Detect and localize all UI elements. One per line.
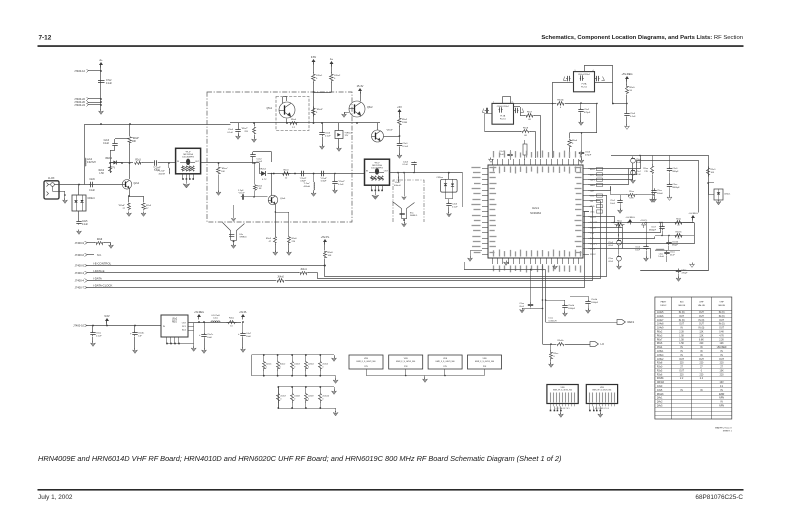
svg-text:VR2x4: VR2x4 xyxy=(259,169,266,171)
svg-text:R2x3: R2x3 xyxy=(135,160,141,162)
svg-text:SHIELD: SHIELD xyxy=(410,215,418,217)
svg-text:IN (0): IN (0) xyxy=(719,316,725,318)
svg-text:6.8K: 6.8K xyxy=(629,198,634,200)
svg-text:2.2pF: 2.2pF xyxy=(238,190,244,192)
svg-text:J7400-4: J7400-4 xyxy=(75,279,85,283)
svg-text:OUT: OUT xyxy=(679,370,684,372)
svg-text:R5x8: R5x8 xyxy=(523,127,529,129)
svg-text:R5x6: R5x6 xyxy=(292,238,298,240)
svg-text:C3x0: C3x0 xyxy=(657,386,663,388)
svg-text:470pF: 470pF xyxy=(682,273,689,275)
svg-text:+5V-REG: +5V-REG xyxy=(194,312,204,314)
svg-text:UNUSED: UNUSED xyxy=(717,347,727,349)
svg-text:R2x5: R2x5 xyxy=(146,205,152,207)
svg-text:I-DATA: I-DATA xyxy=(93,277,102,281)
svg-text:*VR5x3*: *VR5x3* xyxy=(345,133,353,135)
svg-text:*R5xx*: *R5xx* xyxy=(221,168,228,170)
svg-text:200uF: 200uF xyxy=(657,193,664,195)
svg-text:10uF: 10uF xyxy=(246,336,252,338)
svg-text:1.5K: 1.5K xyxy=(257,188,262,190)
svg-text:OUT: OUT xyxy=(719,359,724,361)
svg-text:*R5x7*: *R5x7* xyxy=(241,128,248,130)
svg-text:10K: 10K xyxy=(221,171,225,173)
svg-text:IN: IN xyxy=(680,351,683,353)
svg-text:VHF: VHF xyxy=(719,302,724,304)
svg-text:470pF: 470pF xyxy=(584,112,591,114)
svg-text:+5V-REG: +5V-REG xyxy=(625,217,635,219)
svg-text:R3x0: R3x0 xyxy=(657,367,663,369)
svg-text:+5V-REG: +5V-REG xyxy=(688,213,698,215)
svg-text:JU4x9: JU4x9 xyxy=(657,328,664,330)
svg-text:400nH: 400nH xyxy=(304,186,311,188)
svg-text:680pF: 680pF xyxy=(672,245,679,247)
svg-text:C5x7c: C5x7c xyxy=(207,334,214,336)
svg-text:JU4x7: JU4x7 xyxy=(280,396,287,398)
svg-text:IN (0): IN (0) xyxy=(699,320,705,322)
svg-text:JU5x4: JU5x4 xyxy=(657,355,664,357)
svg-text:1.5K: 1.5K xyxy=(679,343,684,345)
svg-text:C7x2: C7x2 xyxy=(106,80,112,82)
svg-text:R3x6: R3x6 xyxy=(657,374,663,376)
svg-text:0.1uF: 0.1uF xyxy=(325,136,331,138)
svg-text:BIPU: BIPU xyxy=(590,169,595,171)
svg-text:JU4x0: JU4x0 xyxy=(277,277,284,279)
svg-text:10uF: 10uF xyxy=(207,337,213,339)
svg-text:A+: A+ xyxy=(99,58,103,62)
svg-text:1.5K: 1.5K xyxy=(679,339,684,341)
svg-text:C2x2: C2x2 xyxy=(257,159,263,161)
svg-text:C5x5: C5x5 xyxy=(636,159,642,161)
svg-text:400nH: 400nH xyxy=(394,185,401,187)
svg-text:R2x9: R2x9 xyxy=(97,239,103,241)
svg-text:*L2x4*: *L2x4* xyxy=(159,171,166,173)
svg-text:P/N: P/N xyxy=(364,366,368,368)
svg-text:JU4x1: JU4x1 xyxy=(266,364,273,366)
svg-text:12K: 12K xyxy=(720,343,725,345)
svg-text:IN: IN xyxy=(680,355,683,357)
svg-text:10V: 10V xyxy=(720,382,725,384)
svg-text:Q5x1: Q5x1 xyxy=(267,108,273,110)
svg-text:C5x1: C5x1 xyxy=(403,143,409,145)
svg-text:11V: 11V xyxy=(345,135,349,137)
svg-text:C4x4: C4x4 xyxy=(403,162,409,164)
svg-text:0.1uF: 0.1uF xyxy=(106,83,112,85)
svg-text:EMR_F_S_GKV3_966: EMR_F_S_GKV3_966 xyxy=(436,361,455,363)
svg-text:C4x5: C4x5 xyxy=(452,204,458,206)
svg-text:C5x6b: C5x6b xyxy=(672,242,679,244)
svg-text:VALUE: VALUE xyxy=(718,304,726,307)
svg-text:FL2x1: FL2x1 xyxy=(500,118,507,120)
svg-text:C5x9: C5x9 xyxy=(608,242,614,244)
svg-text:OUT: OUT xyxy=(699,316,704,318)
svg-text:JU5x2: JU5x2 xyxy=(657,359,664,361)
svg-text:NPN: NPN xyxy=(719,405,724,407)
svg-text:IN: IN xyxy=(720,390,723,392)
svg-text:DOUT: DOUT xyxy=(590,217,597,219)
svg-text:JU4x10: JU4x10 xyxy=(322,396,330,398)
svg-text:VFB: VFB xyxy=(561,387,566,389)
svg-text:OUT: OUT xyxy=(679,324,684,326)
svg-text:4: 4 xyxy=(593,70,594,72)
svg-text:OSC: OSC xyxy=(590,212,595,214)
svg-text:I-E-CONTROL: I-E-CONTROL xyxy=(93,262,112,266)
svg-text:0.1uF: 0.1uF xyxy=(402,164,408,166)
svg-text:C5x0b: C5x0b xyxy=(568,305,575,307)
svg-text:WAEPF-27-U2-O: WAEPF-27-U2-O xyxy=(715,427,732,430)
svg-text:J7400-24: J7400-24 xyxy=(74,103,85,107)
svg-text:C5x4: C5x4 xyxy=(228,129,234,131)
svg-text:1: 1 xyxy=(575,70,576,72)
svg-text:JU4x3: JU4x3 xyxy=(294,364,301,366)
svg-text:IN: IN xyxy=(720,402,723,404)
svg-text:EMR_F_S_GKV3_966: EMR_F_S_GKV3_966 xyxy=(396,361,415,363)
svg-text:R5x6b: R5x6b xyxy=(557,100,564,102)
svg-text:220R: 220R xyxy=(402,122,408,124)
svg-text:6800pF: 6800pF xyxy=(673,187,681,189)
svg-text:01uF: 01uF xyxy=(636,162,641,164)
svg-text:VFB: VFB xyxy=(364,358,369,360)
svg-text:OUT: OUT xyxy=(699,359,704,361)
svg-text:C5x6: C5x6 xyxy=(325,133,331,135)
svg-text:U2x1: U2x1 xyxy=(532,206,539,210)
svg-text:6.8K: 6.8K xyxy=(699,339,704,341)
svg-text:REF1: REF1 xyxy=(628,320,635,324)
svg-text:VCOP: VCOP xyxy=(590,249,597,251)
svg-text:0.1uF: 0.1uF xyxy=(103,143,109,145)
svg-text:2.2K: 2.2K xyxy=(679,332,684,334)
svg-text:R5x2: R5x2 xyxy=(402,119,408,121)
svg-text:R5x5: R5x5 xyxy=(630,87,636,89)
svg-text:J7400-12: J7400-12 xyxy=(74,69,85,73)
svg-text:FL2x1: FL2x1 xyxy=(581,87,588,89)
svg-text:R5x3: R5x3 xyxy=(266,238,272,240)
svg-text:IN: IN xyxy=(700,351,703,353)
svg-text:C5x2: C5x2 xyxy=(584,109,590,111)
svg-text:1000pF: 1000pF xyxy=(568,308,576,310)
svg-text:IN: IN xyxy=(700,355,703,357)
svg-text:I-DATA-CLOCK: I-DATA-CLOCK xyxy=(93,284,112,288)
svg-text:JU4x5: JU4x5 xyxy=(657,312,664,314)
svg-text:DESC: DESC xyxy=(660,305,666,307)
svg-text:0.027uH: 0.027uH xyxy=(87,162,96,164)
svg-text:C2x6: C2x6 xyxy=(89,179,95,181)
svg-text:OUT: OUT xyxy=(679,316,684,318)
svg-text:R6x6: R6x6 xyxy=(657,343,663,345)
svg-text:47uF: 47uF xyxy=(608,245,613,247)
svg-text:A+: A+ xyxy=(330,57,334,61)
svg-text:JU4x7: JU4x7 xyxy=(657,320,664,322)
svg-text:P/N: P/N xyxy=(483,366,487,368)
svg-text:5.6uH: 5.6uH xyxy=(658,256,664,258)
svg-text:0.1uF: 0.1uF xyxy=(338,184,344,186)
svg-text:N.C.: N.C. xyxy=(97,254,102,257)
svg-text:Q5x2: Q5x2 xyxy=(367,107,373,109)
svg-text:+5V: +5V xyxy=(397,105,402,109)
svg-text:*L2xx*: *L2xx* xyxy=(304,183,310,185)
svg-text:12K: 12K xyxy=(699,332,704,334)
svg-text:SHIELD: SHIELD xyxy=(240,237,248,239)
svg-text:IN: IN xyxy=(680,347,683,349)
svg-text:R6x7: R6x7 xyxy=(657,339,663,341)
svg-text:FLTA: FLTA xyxy=(582,83,587,86)
svg-text:P/N: P/N xyxy=(404,366,408,368)
svg-text:C5x6: C5x6 xyxy=(673,168,679,170)
svg-text:PART: PART xyxy=(661,301,667,304)
svg-text:JU4x8: JU4x8 xyxy=(657,324,664,326)
svg-text:C5x4: C5x4 xyxy=(657,347,663,349)
svg-text:0.9pF: 0.9pF xyxy=(321,181,327,183)
svg-text:JU5x1: JU5x1 xyxy=(657,351,664,353)
svg-text:IN (0): IN (0) xyxy=(699,328,705,330)
svg-text:EMR_VF_S_GKV3_966: EMR_VF_S_GKV3_966 xyxy=(593,390,612,392)
svg-text:J7400-9: J7400-9 xyxy=(75,241,85,245)
svg-text:CR5xx: CR5xx xyxy=(436,177,443,179)
svg-text:*R5x9*: *R5x9* xyxy=(316,109,323,111)
svg-text:OUT: OUT xyxy=(699,312,704,314)
svg-text:OUT: OUT xyxy=(719,328,724,330)
svg-text:JU4x6: JU4x6 xyxy=(657,316,664,318)
svg-text:C5x9b: C5x9b xyxy=(591,299,598,301)
svg-text:1: 1 xyxy=(493,102,494,104)
svg-text:C5x6c: C5x6c xyxy=(138,333,145,335)
svg-text:NPN: NPN xyxy=(719,398,724,400)
svg-text:10K: 10K xyxy=(720,370,725,372)
svg-text:J1-RX: J1-RX xyxy=(48,178,55,180)
svg-text:IN: IN xyxy=(720,355,723,357)
svg-text:R3x8b: R3x8b xyxy=(657,378,664,380)
svg-text:UHF: UHF xyxy=(699,302,704,304)
svg-text:MF7021A: MF7021A xyxy=(372,164,382,167)
svg-text:Q2x4: Q2x4 xyxy=(134,183,140,185)
svg-text:15.4V: 15.4V xyxy=(357,84,364,88)
svg-text:JU5x2: JU5x2 xyxy=(334,75,341,77)
svg-text:U5x2: U5x2 xyxy=(172,319,178,321)
svg-text:R2x0: R2x0 xyxy=(283,170,289,172)
svg-text:T-CI: T-CI xyxy=(590,233,594,235)
svg-text:JU4x8: JU4x8 xyxy=(294,396,301,398)
svg-text:2.2K: 2.2K xyxy=(719,339,724,341)
svg-text:C2x5: C2x5 xyxy=(82,221,88,223)
svg-text:10uF: 10uF xyxy=(635,250,640,252)
svg-text:CR4x1/CR4x2: CR4x1/CR4x2 xyxy=(497,106,509,108)
svg-text:10K: 10K xyxy=(711,172,715,174)
svg-text:R5x8: R5x8 xyxy=(328,252,334,254)
svg-text:IN: IN xyxy=(700,390,703,392)
svg-text:R2x2: R2x2 xyxy=(257,186,263,188)
svg-text:JU4x5: JU4x5 xyxy=(322,364,329,366)
svg-text:0.1uF: 0.1uF xyxy=(630,116,636,118)
svg-text:C5x3: C5x3 xyxy=(585,152,591,154)
svg-text:OUT: OUT xyxy=(719,320,724,322)
svg-text:REG: REG xyxy=(172,322,177,324)
svg-text:J7400-3: J7400-3 xyxy=(75,271,85,275)
svg-text:R5x7: R5x7 xyxy=(527,112,533,114)
svg-text:R3x5: R3x5 xyxy=(657,370,663,372)
svg-text:LO: LO xyxy=(601,342,604,346)
svg-text:IN (0): IN (0) xyxy=(679,320,685,322)
svg-text:Q4x2: Q4x2 xyxy=(657,402,663,404)
svg-text:J7400-10: J7400-10 xyxy=(73,324,84,328)
svg-text:*Q5x3*: *Q5x3* xyxy=(386,130,393,132)
svg-text:01uF: 01uF xyxy=(670,255,675,257)
svg-text:JU4x2: JU4x2 xyxy=(280,364,287,366)
svg-text:0.1uF: 0.1uF xyxy=(452,207,458,209)
svg-text:+5V-PL: +5V-PL xyxy=(321,235,330,239)
svg-text:R5x0: R5x0 xyxy=(676,219,682,221)
svg-text:OUT: OUT xyxy=(679,359,684,361)
svg-text:0.1uF: 0.1uF xyxy=(82,224,88,226)
svg-text:J7400-7: J7400-7 xyxy=(75,286,85,290)
svg-text:C5x7: C5x7 xyxy=(636,171,642,173)
svg-text:SAF1: SAF1 xyxy=(590,179,596,182)
svg-text:JU4x1: JU4x1 xyxy=(300,269,307,271)
svg-text:*C5x0*: *C5x0* xyxy=(338,181,345,183)
svg-text:R5x7b: R5x7b xyxy=(675,232,682,234)
svg-text:0.1uF: 0.1uF xyxy=(227,132,233,134)
svg-text:CR4x1: CR4x1 xyxy=(724,194,731,196)
svg-text:IN: IN xyxy=(700,347,703,349)
svg-text:10K: 10K xyxy=(132,141,137,143)
svg-text:Schematics, Component Location: Schematics, Component Location Diagrams,… xyxy=(541,35,743,41)
svg-text:C5x7: C5x7 xyxy=(651,227,657,229)
svg-text:VFB: VFB xyxy=(404,358,409,360)
svg-text:J7400-5: J7400-5 xyxy=(75,264,85,268)
svg-text:J7400-6: J7400-6 xyxy=(75,253,85,257)
svg-text:C3x5: C3x5 xyxy=(657,390,663,392)
svg-text:C5x4: C5x4 xyxy=(635,247,641,249)
svg-text:1uF: 1uF xyxy=(138,336,142,338)
svg-text:R2x2: R2x2 xyxy=(99,170,105,172)
svg-text:C2x3: C2x3 xyxy=(104,140,110,142)
svg-text:400nH: 400nH xyxy=(159,174,166,176)
svg-text:1.5K: 1.5K xyxy=(679,335,684,337)
svg-text:4 3 2 1 A 9 8 7 6 5: 4 3 2 1 A 9 8 7 6 5 xyxy=(595,407,609,410)
svg-text:Q4x1: Q4x1 xyxy=(657,398,663,400)
svg-text:12K: 12K xyxy=(699,335,704,337)
svg-text:R5x0: R5x0 xyxy=(572,140,578,142)
svg-text:R5x9: R5x9 xyxy=(711,169,717,171)
svg-text:7-12: 7-12 xyxy=(39,35,52,42)
svg-text:IN (0): IN (0) xyxy=(719,312,725,314)
svg-text:47uF: 47uF xyxy=(636,174,641,176)
svg-text:0.107uH: 0.107uH xyxy=(211,315,220,317)
svg-text:IN: IN xyxy=(680,328,683,330)
svg-text:CR4x1/CR4x2: CR4x1/CR4x2 xyxy=(578,74,590,76)
svg-text:10K: 10K xyxy=(328,255,332,257)
svg-text:JU4x9: JU4x9 xyxy=(308,396,315,398)
svg-text:0.4K: 0.4K xyxy=(719,332,724,334)
svg-text:0.1uF: 0.1uF xyxy=(403,146,409,148)
svg-text:P/N: P/N xyxy=(443,366,447,368)
svg-text:VALUE: VALUE xyxy=(678,304,686,307)
svg-text:IN: IN xyxy=(680,390,683,392)
svg-text:9.6V: 9.6V xyxy=(104,314,110,318)
svg-text:JU4x4: JU4x4 xyxy=(308,364,315,366)
svg-text:+5V-PL: +5V-PL xyxy=(239,312,247,314)
svg-text:*R2x6*: *R2x6* xyxy=(118,205,125,207)
svg-text:68P81076C25-C: 68P81076C25-C xyxy=(695,494,743,501)
svg-text:EMR_F_S_GKV3_966: EMR_F_S_GKV3_966 xyxy=(475,361,494,363)
svg-text:IN (0): IN (0) xyxy=(679,312,685,314)
svg-text:FLTA: FLTA xyxy=(500,114,505,117)
svg-text:27K: 27K xyxy=(644,171,648,173)
svg-text:R6x2b: R6x2b xyxy=(657,394,664,396)
svg-text:CR2x4: CR2x4 xyxy=(88,198,96,200)
svg-text:VR2x2: VR2x2 xyxy=(105,158,113,160)
svg-text:SC39464: SC39464 xyxy=(530,211,541,215)
svg-text:L2x4: L2x4 xyxy=(87,159,93,161)
svg-text:VALUE: VALUE xyxy=(698,304,706,307)
svg-text:EMR_F_S_GKV3_966: EMR_F_S_GKV3_966 xyxy=(356,361,375,363)
svg-text:C5x5: C5x5 xyxy=(630,113,636,115)
svg-text:220R: 220R xyxy=(719,394,725,396)
svg-text:4.7V: 4.7V xyxy=(262,179,267,181)
svg-text:R6x2: R6x2 xyxy=(657,332,663,334)
svg-text:VFB: VFB xyxy=(443,358,448,360)
svg-text:VFB: VFB xyxy=(600,387,605,389)
svg-text:4.7K: 4.7K xyxy=(719,335,724,337)
svg-text:1000pF: 1000pF xyxy=(591,302,599,304)
svg-text:10uF: 10uF xyxy=(610,203,615,205)
svg-text:470pF: 470pF xyxy=(585,155,592,157)
svg-text:Q4x5: Q4x5 xyxy=(657,405,663,407)
svg-text:0.1uF: 0.1uF xyxy=(96,336,102,338)
svg-text:C4x7: C4x7 xyxy=(246,333,252,335)
svg-text:1.5K: 1.5K xyxy=(99,173,104,175)
svg-text:R3x8: R3x8 xyxy=(657,363,663,365)
svg-text:July 1, 2002: July 1, 2002 xyxy=(38,494,73,501)
svg-text:OUT: OUT xyxy=(699,324,704,326)
svg-text:6800pF: 6800pF xyxy=(649,230,657,232)
svg-text:JU5x1: JU5x1 xyxy=(316,75,323,77)
svg-text:+5V-REG: +5V-REG xyxy=(621,72,632,76)
svg-text:VFB: VFB xyxy=(483,358,488,360)
svg-text:R5x4: R5x4 xyxy=(291,119,297,121)
svg-text:DVCC: DVCC xyxy=(590,254,596,256)
svg-text:C5x1: C5x1 xyxy=(610,200,616,202)
svg-text:SHEET 1: SHEET 1 xyxy=(723,431,733,433)
svg-text:EMR_VF_S_GKV3_966: EMR_VF_S_GKV3_966 xyxy=(553,390,572,392)
svg-text:47uF: 47uF xyxy=(608,261,613,263)
svg-text:*L5x0*: *L5x0* xyxy=(394,182,401,184)
svg-text:IN: IN xyxy=(720,351,723,353)
svg-text:IN (0): IN (0) xyxy=(719,324,725,326)
svg-text:*R2x4*: *R2x4* xyxy=(132,138,139,140)
svg-text:+5V-PL: +5V-PL xyxy=(640,220,648,222)
svg-text:R5x4b: R5x4b xyxy=(557,340,564,342)
svg-text:100-80MPG: 100-80MPG xyxy=(182,157,194,159)
svg-text:Q5x6: Q5x6 xyxy=(280,198,286,200)
svg-text:01uF: 01uF xyxy=(519,306,524,308)
svg-text:CR3x6: CR3x6 xyxy=(657,382,665,384)
svg-text:0.1uF: 0.1uF xyxy=(89,190,95,192)
svg-text:9.6V: 9.6V xyxy=(311,55,317,59)
svg-text:680pF: 680pF xyxy=(673,171,680,173)
svg-text:*C5x3*: *C5x3* xyxy=(238,193,245,195)
svg-text:HRN4009E and HRN6014D VHF RF B: HRN4009E and HRN6014D VHF RF Board; HRN4… xyxy=(38,454,562,463)
svg-text:R6x3: R6x3 xyxy=(657,335,663,337)
svg-text:MF7021A: MF7021A xyxy=(183,153,193,156)
